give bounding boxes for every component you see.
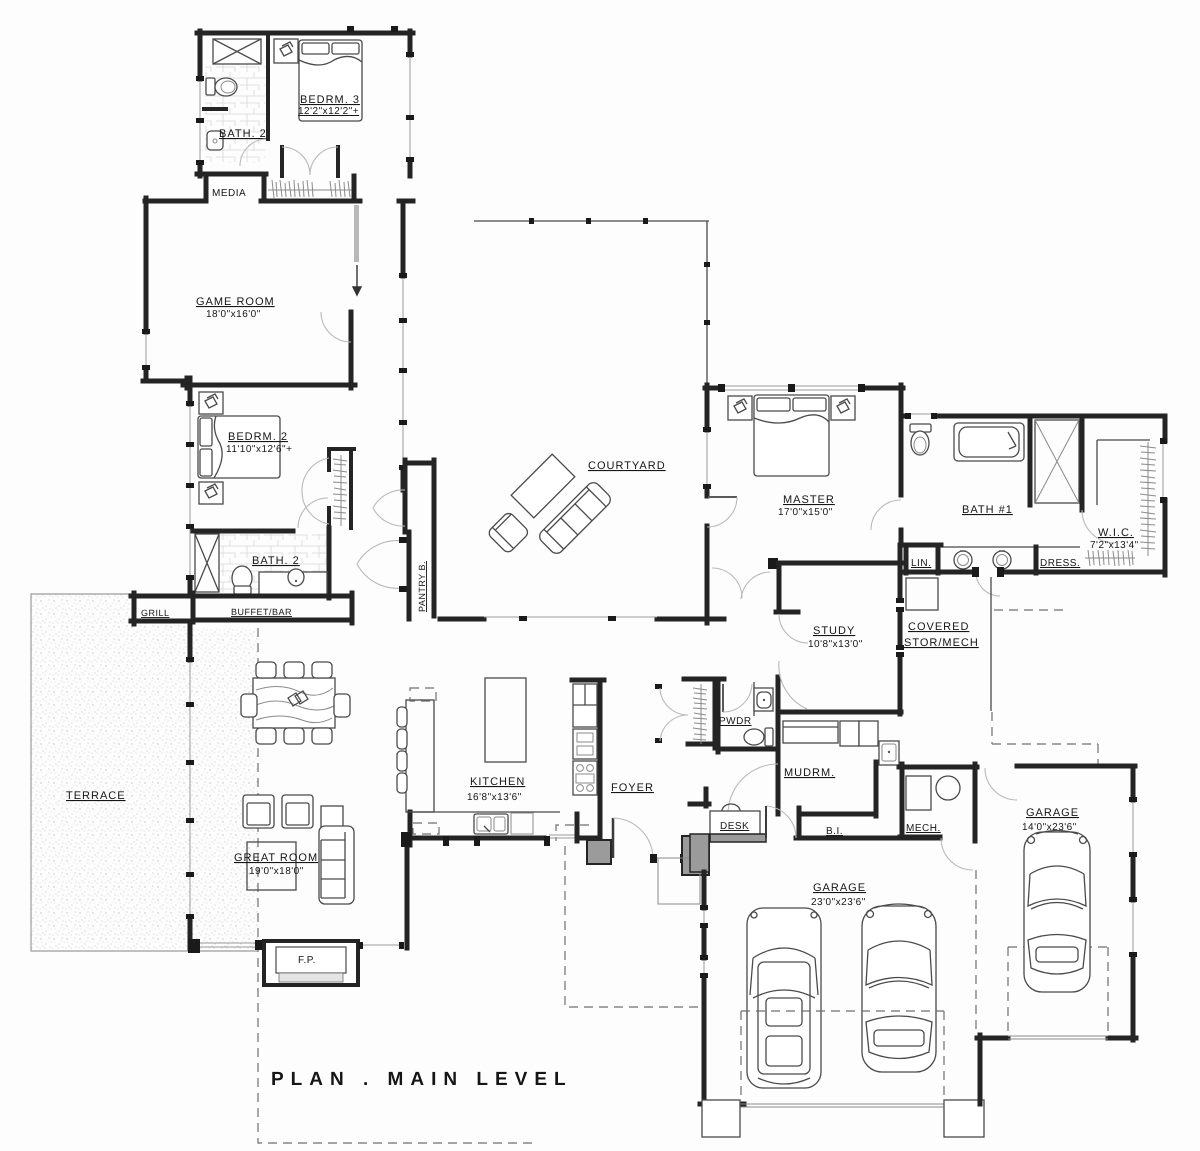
- svg-text:KITCHEN: KITCHEN: [470, 776, 525, 788]
- svg-text:18'0"x16'0": 18'0"x16'0": [206, 309, 261, 320]
- svg-text:10'8"x13'0": 10'8"x13'0": [808, 639, 863, 650]
- svg-text:DESK: DESK: [720, 821, 749, 832]
- svg-text:STOR/MECH: STOR/MECH: [904, 637, 979, 649]
- svg-text:12'2"x12'2"+: 12'2"x12'2"+: [298, 106, 359, 117]
- svg-text:TERRACE: TERRACE: [66, 790, 126, 802]
- svg-text:GAME ROOM: GAME ROOM: [196, 296, 275, 308]
- svg-text:17'0"x15'0": 17'0"x15'0": [778, 507, 833, 518]
- svg-text:MUDRM.: MUDRM.: [784, 767, 835, 779]
- svg-text:23'0"x23'6": 23'0"x23'6": [811, 897, 866, 908]
- svg-text:GREAT ROOM: GREAT ROOM: [234, 852, 318, 864]
- svg-text:7'2"x13'4": 7'2"x13'4": [1090, 540, 1139, 551]
- svg-text:COURTYARD: COURTYARD: [588, 460, 666, 472]
- svg-text:FOYER: FOYER: [611, 782, 654, 794]
- svg-text:DRESS.: DRESS.: [1040, 558, 1080, 569]
- svg-text:LIN.: LIN.: [911, 558, 931, 569]
- svg-text:BUFFET/BAR: BUFFET/BAR: [231, 607, 292, 617]
- svg-text:COVERED: COVERED: [908, 621, 969, 633]
- svg-text:PLAN . MAIN LEVEL: PLAN . MAIN LEVEL: [271, 1069, 573, 1090]
- svg-text:MECH.: MECH.: [906, 823, 941, 834]
- svg-text:STUDY: STUDY: [813, 625, 855, 637]
- svg-text:19'0"x18'0": 19'0"x18'0": [249, 866, 304, 877]
- svg-text:GARAGE: GARAGE: [1026, 807, 1079, 819]
- svg-text:PANTRY B.: PANTRY B.: [417, 561, 427, 612]
- svg-text:BATH #1: BATH #1: [962, 504, 1013, 516]
- svg-text:16'8"x13'6": 16'8"x13'6": [467, 792, 522, 803]
- svg-text:W.I.C.: W.I.C.: [1098, 527, 1134, 539]
- svg-text:B.I.: B.I.: [826, 826, 843, 837]
- svg-text:GRILL: GRILL: [141, 608, 170, 618]
- svg-text:BEDRM. 2: BEDRM. 2: [228, 431, 288, 443]
- svg-text:11'10"x12'6"+: 11'10"x12'6"+: [226, 444, 292, 455]
- svg-text:F.P.: F.P.: [298, 955, 316, 966]
- svg-text:PWDR: PWDR: [719, 716, 752, 727]
- svg-text:MASTER: MASTER: [783, 494, 835, 506]
- svg-text:BATH. 2: BATH. 2: [219, 128, 267, 140]
- svg-text:MEDIA: MEDIA: [212, 188, 246, 199]
- svg-text:BATH. 2: BATH. 2: [252, 555, 300, 567]
- svg-text:GARAGE: GARAGE: [813, 882, 866, 894]
- svg-text:BEDRM. 3: BEDRM. 3: [300, 94, 360, 106]
